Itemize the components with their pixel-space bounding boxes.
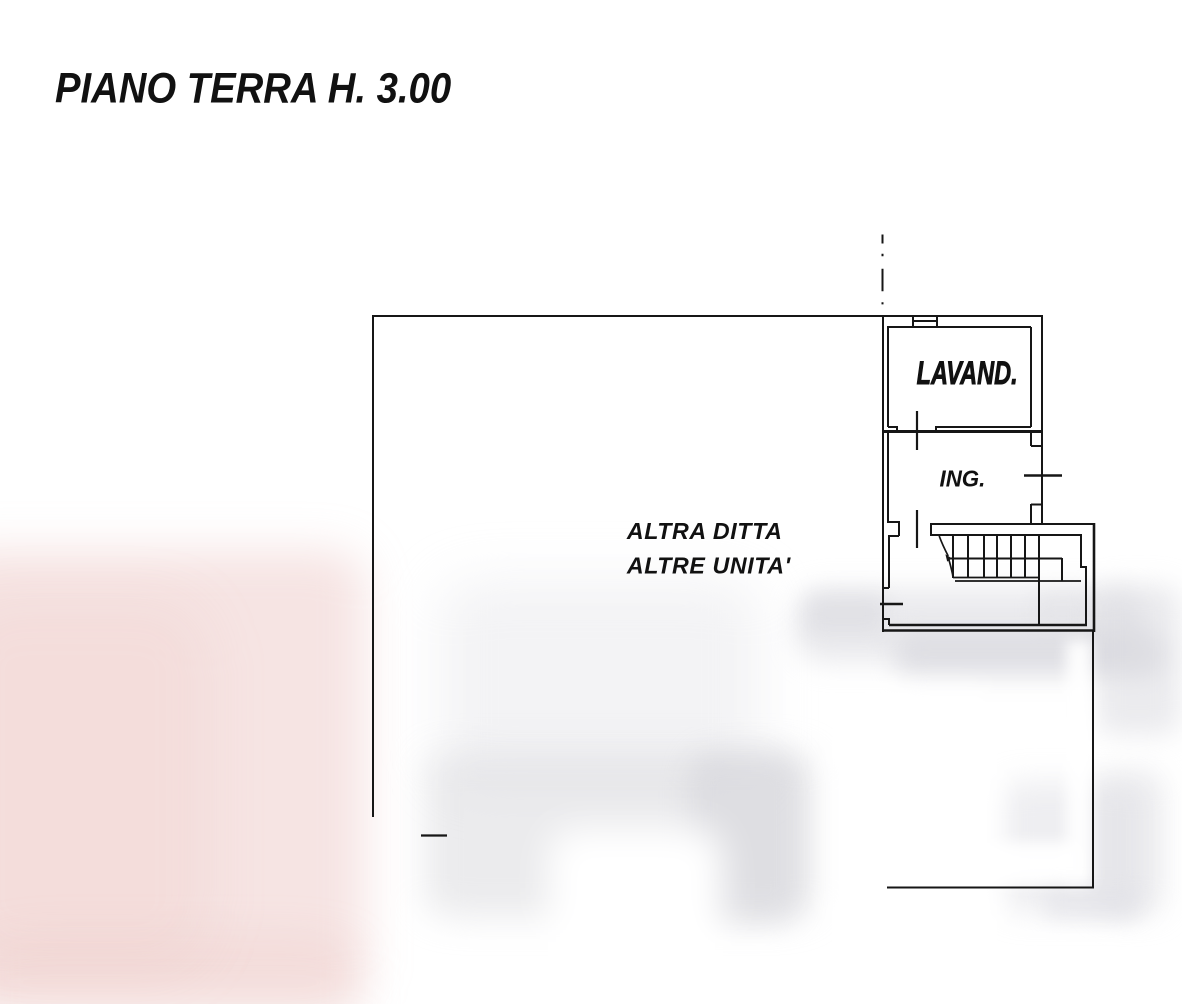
svg-text:ING.: ING. [940,465,986,492]
svg-text:PIANO TERRA H. 3.00: PIANO TERRA H. 3.00 [55,63,451,112]
svg-text:LAVAND.: LAVAND. [917,356,1018,391]
svg-text:ALTRE UNITA': ALTRE UNITA' [626,553,792,579]
svg-text:ALTRA DITTA: ALTRA DITTA [626,518,783,544]
